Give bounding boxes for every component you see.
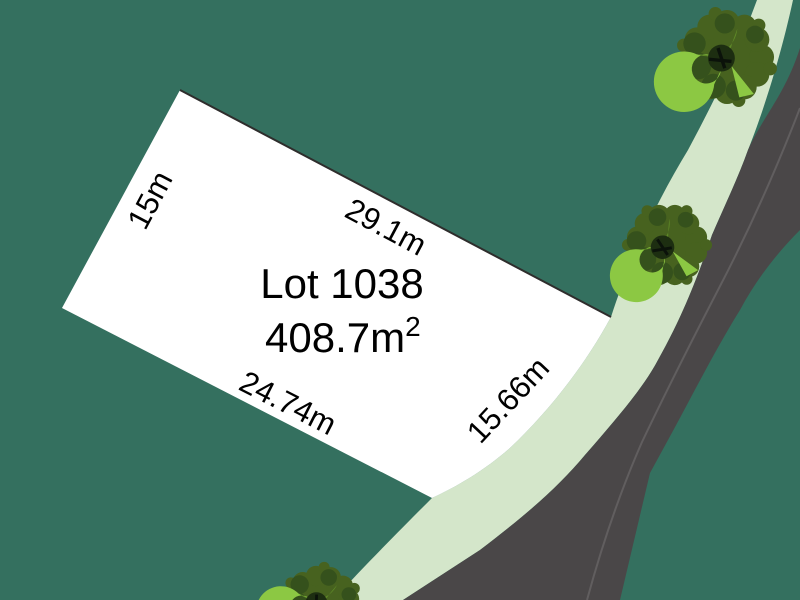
lot-name-label: Lot 1038 (260, 260, 424, 307)
lot-area-value: 408.7m (265, 314, 405, 361)
lot-area-label: 408.7m2 (265, 311, 421, 361)
site-plan-canvas: 15m 29.1m 24.74m 15.66m Lot 1038 408.7m2 (0, 0, 800, 600)
lot-area-exponent: 2 (405, 311, 421, 342)
